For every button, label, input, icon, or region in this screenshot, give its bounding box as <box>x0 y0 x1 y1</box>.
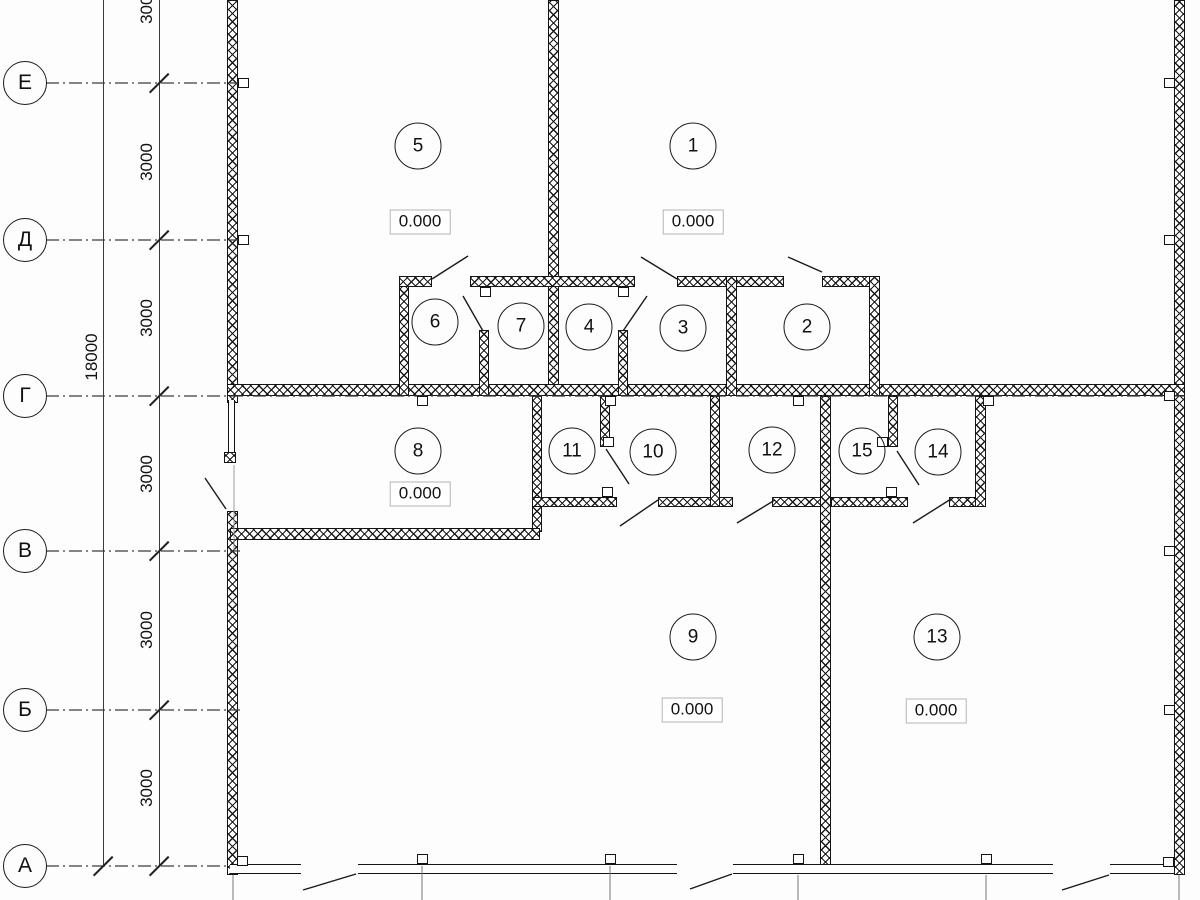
room-tag-6: 6 <box>412 299 459 346</box>
door-swing-6-7 <box>463 296 483 331</box>
door-swing-4-3 <box>623 296 647 331</box>
axis-marker-v: В <box>3 529 47 573</box>
room-number: 5 <box>413 135 424 157</box>
dim-segment-label: 3000 <box>137 0 157 24</box>
elevation-label-room8: 0.000 <box>390 482 451 507</box>
tie-square <box>238 235 249 245</box>
axis-label: Е <box>18 71 32 95</box>
room-number: 4 <box>584 316 595 338</box>
door-swing-11-10 <box>606 449 629 484</box>
tie-square <box>1164 546 1175 556</box>
tie-square <box>417 854 428 864</box>
room-tag-8: 8 <box>395 428 442 475</box>
room-tag-10: 10 <box>630 429 677 476</box>
door-swing-room14-bottom <box>913 499 951 523</box>
door-swing-room10-bottom <box>620 500 658 526</box>
tie-square <box>1164 235 1175 245</box>
tie-square <box>793 854 804 864</box>
room-tag-7: 7 <box>498 303 545 350</box>
floor-plan-canvas: Е Д Г В Б А 3000 3000 3000 3000 3000 300… <box>0 0 1200 900</box>
room-tag-15: 15 <box>839 428 886 475</box>
room-number: 8 <box>413 440 424 462</box>
room-tag-1: 1 <box>670 123 717 170</box>
door-swing-room3-top <box>641 257 677 279</box>
dim-segment-label: 3000 <box>137 455 157 493</box>
tie-square <box>983 396 994 406</box>
room-number: 13 <box>926 626 947 648</box>
axis-label: Г <box>19 384 30 408</box>
axis-label: А <box>18 854 32 878</box>
door-swing-bottom-2 <box>690 874 732 889</box>
hinge-square <box>602 487 613 497</box>
elevation-label-room9: 0.000 <box>662 698 723 723</box>
axis-marker-d: Д <box>3 218 47 262</box>
axis-marker-e: Е <box>3 61 47 105</box>
axis-marker-b: Б <box>3 688 47 732</box>
dim-segment-label: 3000 <box>137 299 157 337</box>
room-tag-14: 14 <box>915 429 962 476</box>
hinge-square <box>618 287 629 297</box>
room-number: 6 <box>430 311 441 333</box>
axis-marker-a: А <box>3 844 47 888</box>
tie-square <box>237 856 248 866</box>
dim-segment-label: 3000 <box>137 769 157 807</box>
room-tag-3: 3 <box>660 305 707 352</box>
tie-square <box>605 854 616 864</box>
room-number: 11 <box>562 440 582 462</box>
door-swing-room12-bottom <box>737 500 775 523</box>
elevation-label-room5: 0.000 <box>390 210 451 235</box>
room-tag-11: 11 <box>549 428 596 475</box>
door-swing-bottom-1 <box>303 874 356 890</box>
annotation-lines-layer <box>0 0 1200 900</box>
door-swing-bottom-3 <box>1062 875 1109 890</box>
door-swing-room6-top <box>432 256 468 279</box>
tie-square <box>793 396 804 406</box>
tie-square <box>1163 857 1174 867</box>
room-tag-2: 2 <box>784 304 831 351</box>
door-swing-room2-top <box>788 257 822 272</box>
tie-square <box>417 396 428 406</box>
hinge-square <box>886 487 897 497</box>
tie-square <box>1164 78 1175 88</box>
dim-segment-label: 3000 <box>137 611 157 649</box>
tie-square <box>981 854 992 864</box>
tie-square <box>1164 705 1175 715</box>
room-number: 1 <box>688 135 699 157</box>
room-tag-12: 12 <box>749 427 796 474</box>
room-tag-13: 13 <box>914 614 961 661</box>
elevation-label-room1: 0.000 <box>663 210 724 235</box>
room-tag-5: 5 <box>395 123 442 170</box>
room-number: 9 <box>688 626 699 648</box>
dim-segment-label: 3000 <box>137 143 157 181</box>
elevation-label-room13: 0.000 <box>906 699 967 724</box>
axis-label: Б <box>18 698 32 722</box>
tie-square <box>238 78 249 88</box>
tie-square <box>605 396 616 406</box>
door-swing-left-wall <box>205 478 226 509</box>
room-number: 12 <box>761 439 782 461</box>
room-number: 10 <box>642 441 663 463</box>
room-number: 15 <box>851 440 872 462</box>
room-number: 2 <box>802 316 813 338</box>
axis-label: В <box>18 539 32 563</box>
dim-total-label: 18000 <box>82 333 102 380</box>
hinge-square <box>480 287 491 297</box>
axis-marker-g: Г <box>3 374 47 418</box>
room-number: 3 <box>678 317 689 339</box>
room-number: 14 <box>927 441 948 463</box>
room-number: 7 <box>516 315 527 337</box>
tie-square <box>1164 391 1175 401</box>
axis-label: Д <box>18 228 32 252</box>
hinge-square <box>603 437 614 447</box>
room-tag-9: 9 <box>670 614 717 661</box>
room-tag-4: 4 <box>566 304 613 351</box>
